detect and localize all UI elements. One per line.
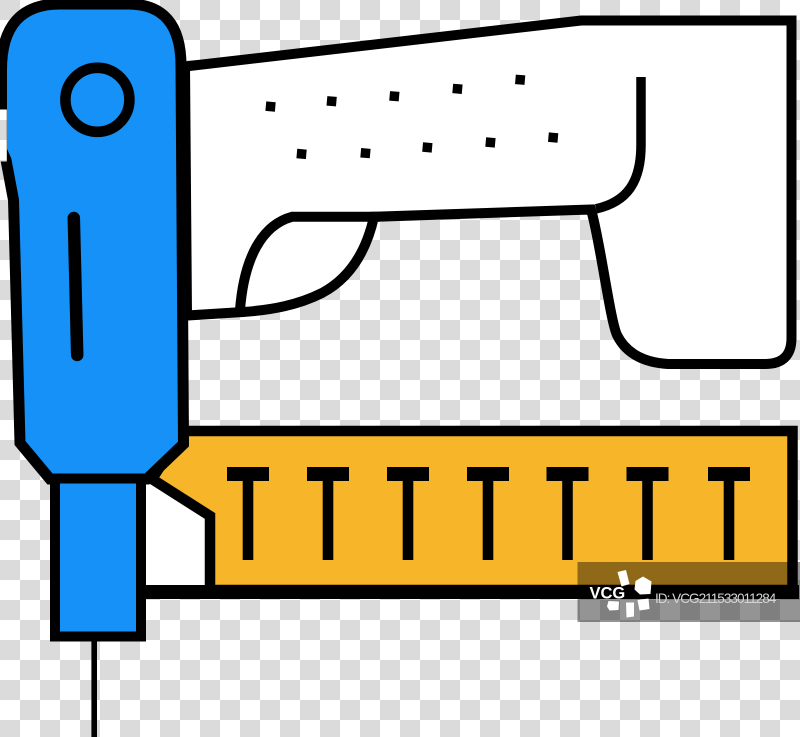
svg-text:VCG: VCG: [590, 585, 626, 603]
svg-text:ID: VCG211533011284: ID: VCG211533011284: [655, 591, 777, 606]
